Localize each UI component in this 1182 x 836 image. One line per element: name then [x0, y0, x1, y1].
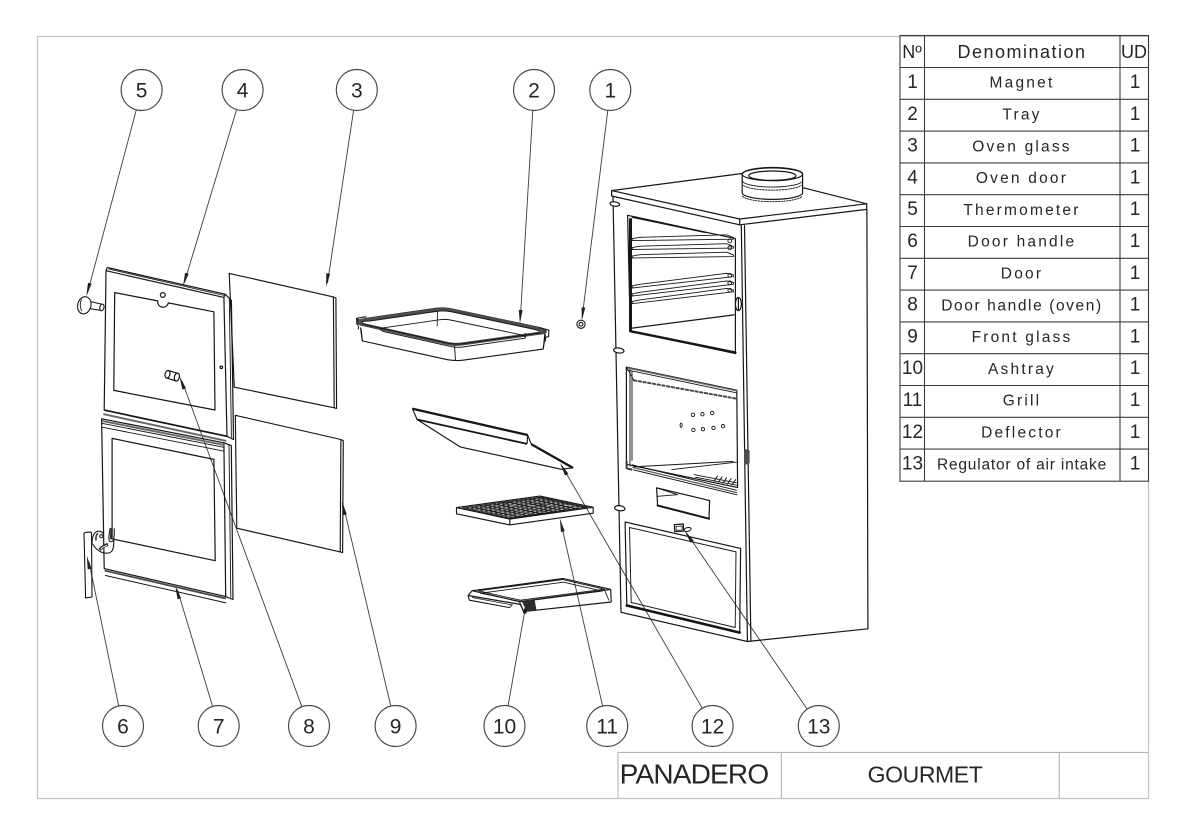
- svg-text:8: 8: [303, 716, 315, 739]
- svg-text:1: 1: [1130, 390, 1141, 411]
- svg-text:1: 1: [1130, 358, 1141, 379]
- svg-text:3: 3: [351, 80, 363, 103]
- svg-text:Door handle: Door handle: [968, 234, 1077, 251]
- svg-text:Grill: Grill: [1003, 393, 1042, 410]
- svg-text:3: 3: [907, 136, 918, 157]
- svg-text:7: 7: [213, 716, 225, 739]
- svg-text:6: 6: [117, 716, 129, 739]
- svg-text:2: 2: [528, 80, 540, 103]
- svg-text:Denomination: Denomination: [957, 42, 1086, 62]
- svg-text:1: 1: [1130, 422, 1141, 443]
- svg-text:PANADERO: PANADERO: [620, 759, 769, 790]
- svg-text:5: 5: [907, 199, 918, 220]
- svg-text:1: 1: [1130, 104, 1141, 125]
- svg-text:1: 1: [1130, 199, 1141, 220]
- svg-text:1: 1: [1130, 454, 1141, 475]
- svg-text:10: 10: [902, 358, 923, 379]
- svg-text:Oven door: Oven door: [976, 170, 1068, 187]
- svg-text:10: 10: [493, 716, 516, 739]
- svg-text:1: 1: [1130, 167, 1141, 188]
- svg-text:11: 11: [596, 716, 618, 739]
- svg-text:13: 13: [902, 454, 923, 475]
- svg-text:Regulator of air intake: Regulator of air intake: [937, 456, 1107, 473]
- svg-text:9: 9: [390, 716, 402, 739]
- svg-text:1: 1: [1130, 231, 1141, 252]
- svg-text:1: 1: [1130, 136, 1141, 157]
- svg-text:Door: Door: [1001, 266, 1043, 283]
- svg-text:Magnet: Magnet: [990, 75, 1055, 92]
- svg-text:Thermometer: Thermometer: [963, 202, 1080, 219]
- svg-text:5: 5: [136, 80, 148, 103]
- svg-text:12: 12: [902, 422, 923, 443]
- svg-text:12: 12: [701, 716, 724, 739]
- svg-text:Door handle (oven): Door handle (oven): [941, 297, 1103, 314]
- svg-text:UD: UD: [1121, 42, 1147, 62]
- svg-text:13: 13: [807, 716, 830, 739]
- svg-text:9: 9: [907, 326, 918, 347]
- svg-text:1: 1: [907, 72, 918, 93]
- svg-text:4: 4: [237, 80, 249, 103]
- svg-text:4: 4: [907, 167, 918, 188]
- svg-text:1: 1: [604, 80, 616, 103]
- svg-text:11: 11: [903, 390, 923, 411]
- svg-text:Front glass: Front glass: [972, 329, 1073, 346]
- svg-text:Tray: Tray: [1002, 107, 1041, 124]
- svg-text:1: 1: [1130, 263, 1141, 284]
- svg-text:GOURMET: GOURMET: [868, 762, 983, 788]
- svg-text:7: 7: [907, 263, 918, 284]
- svg-text:Nº: Nº: [902, 42, 922, 62]
- svg-text:2: 2: [907, 104, 918, 125]
- svg-text:6: 6: [907, 231, 918, 252]
- svg-text:Deflector: Deflector: [981, 425, 1063, 442]
- svg-text:1: 1: [1130, 326, 1141, 347]
- svg-text:Oven glass: Oven glass: [972, 138, 1072, 155]
- svg-text:Ashtray: Ashtray: [988, 361, 1056, 378]
- svg-text:1: 1: [1130, 72, 1141, 93]
- svg-text:8: 8: [907, 295, 918, 316]
- svg-text:1: 1: [1130, 295, 1141, 316]
